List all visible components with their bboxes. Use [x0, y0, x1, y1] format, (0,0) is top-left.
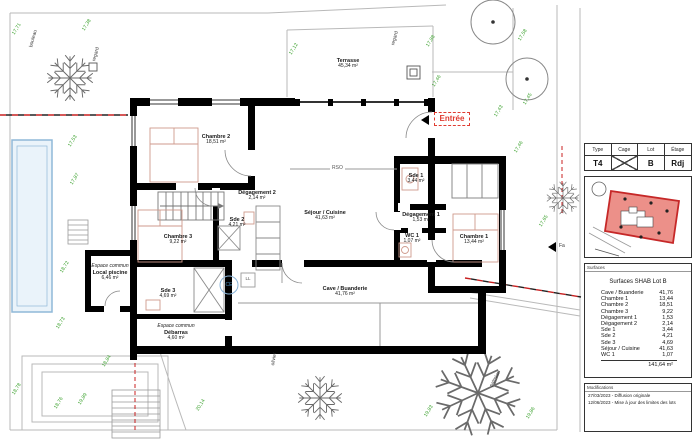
title-block-header-table: Type Cage Lot Étage T4 B Rdj: [584, 143, 692, 171]
room-area: 6,46 m²: [78, 276, 142, 282]
fa-marker-icon: [548, 242, 556, 252]
col-type: Type: [585, 144, 612, 156]
cage-crossed-cell: [612, 156, 639, 170]
surface-value: 1,07: [662, 352, 673, 358]
room-area: 4,69 m²: [136, 294, 200, 300]
surfaces-panel: Surfaces Surfaces SHAB Lot B Cave / Buan…: [584, 263, 692, 378]
room-area: 45,34 m²: [316, 64, 380, 70]
room-area: 4,21 m²: [205, 223, 269, 229]
surface-label: WC 1: [601, 352, 615, 358]
room-label-sde-1: Sde 1 3,44 m²: [384, 173, 448, 185]
room-label-debarras: Espace commun Débarras 4,60 m²: [144, 324, 208, 342]
room-label-chambre-2: Chambre 2 18,51 m²: [184, 134, 248, 146]
room-label-sejour-cuisine: Séjour / Cuisine 41,63 m²: [293, 210, 357, 222]
room-label-sde-3: Sde 3 4,69 m²: [136, 288, 200, 300]
tree-icon: [424, 339, 531, 439]
type-value: T4: [585, 156, 612, 170]
etage-value: Rdj: [665, 156, 692, 170]
location-map-drawing: [585, 177, 691, 257]
room-label-wc-1: WC 1 1,07 m²: [380, 233, 444, 245]
rso-label: RSO: [330, 165, 345, 171]
entrance-arrow-icon: [421, 115, 429, 125]
fa-label: Fa: [559, 243, 565, 249]
tree-icon: [47, 55, 93, 101]
col-cage: Cage: [612, 144, 639, 156]
room-area: 9,22 m²: [146, 240, 210, 246]
tree-icon: [547, 182, 579, 214]
washer-label: LL: [241, 276, 255, 281]
canopy-trunk-dot: [525, 77, 529, 81]
room-label-sde-2: Sde 2 4,21 m²: [205, 217, 269, 229]
room-label-local-piscine: Espace commun Local piscine 6,46 m²: [78, 264, 142, 282]
wall-openings: [104, 112, 436, 336]
location-map: [584, 176, 692, 258]
room-label-degagement-2: Dégagement 2 2,14 m²: [225, 190, 289, 202]
pool: [12, 140, 52, 312]
surface-row: WC 11,07: [585, 352, 691, 358]
entrance-label: Entrée: [434, 112, 470, 126]
room-label-terrasse: Terrasse 45,34 m²: [316, 58, 380, 70]
col-etage: Étage: [665, 144, 692, 156]
room-label-chambre-3: Chambre 3 9,22 m²: [146, 234, 210, 246]
room-area: 2,14 m²: [225, 196, 289, 202]
room-area: 41,76 m²: [313, 292, 377, 298]
col-lot: Lot: [638, 144, 665, 156]
room-area: 41,63 m²: [293, 216, 357, 222]
modification-entry: 12/06/2023 - Mise à jour des limites des…: [585, 399, 691, 406]
room-area: 3,44 m²: [384, 179, 448, 185]
room-area: 18,51 m²: [184, 140, 248, 146]
room-label-chambre-1: Chambre 1 13,44 m²: [442, 234, 506, 246]
modifications-panel: Modifications 27/03/2023 - Diffusion ori…: [584, 383, 692, 432]
room-area: 1,07 m²: [380, 239, 444, 245]
tree-icon: [298, 376, 342, 420]
lot-value: B: [638, 156, 665, 170]
surfaces-title: Surfaces SHAB Lot B: [585, 279, 691, 285]
room-area: 1,53 m²: [389, 218, 453, 224]
room-area: 13,44 m²: [442, 240, 506, 246]
surfaces-total: 141,64 m²: [601, 360, 677, 368]
modifications-section-label: Modifications: [585, 384, 691, 392]
floor-plan-sheet: Terrasse 45,34 m² Chambre 2 18,51 m² Dég…: [0, 0, 700, 439]
room-label-degagement-1: Dégagement 1 1,53 m²: [389, 212, 453, 224]
room-label-cave-buanderie: Cave / Buanderie 41,76 m²: [313, 286, 377, 298]
walls: [85, 98, 506, 360]
water-heater-label: CE: [222, 282, 236, 288]
surfaces-section-label: Surfaces: [585, 264, 691, 272]
room-area: 4,60 m²: [144, 336, 208, 342]
canopy-trunk-dot: [491, 20, 495, 24]
